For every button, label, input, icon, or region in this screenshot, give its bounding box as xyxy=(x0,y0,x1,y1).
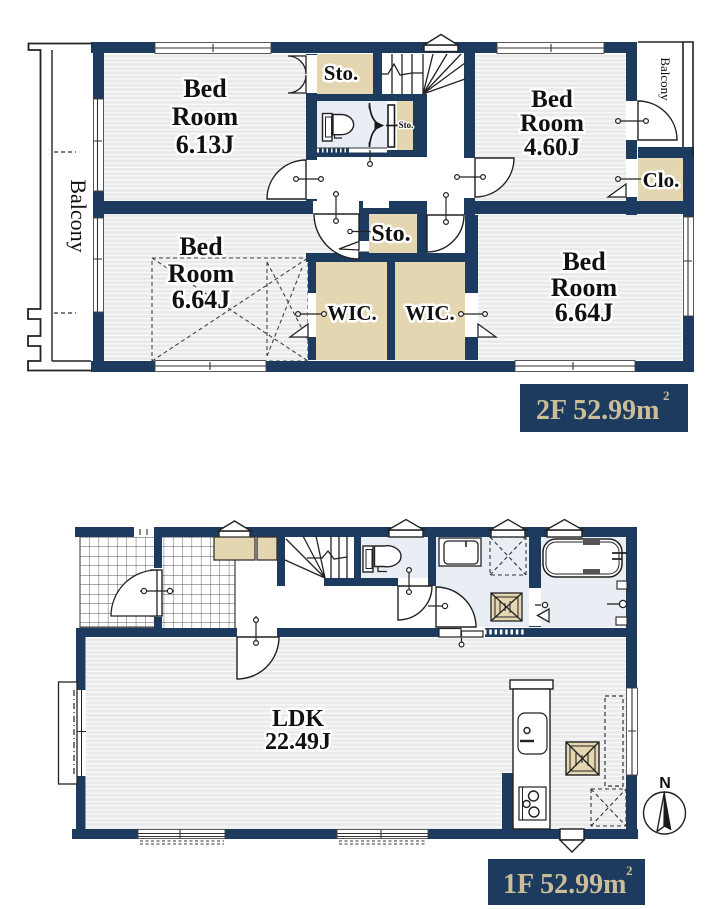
svg-text:Room: Room xyxy=(520,110,584,137)
svg-text:Room: Room xyxy=(168,259,235,288)
svg-text:Room: Room xyxy=(172,102,239,131)
svg-text:N: N xyxy=(659,775,671,792)
svg-text:6.64J: 6.64J xyxy=(172,285,231,314)
svg-text:Sto.: Sto. xyxy=(371,221,410,247)
svg-text:6.64J: 6.64J xyxy=(555,298,614,327)
svg-text:Clo.: Clo. xyxy=(643,168,680,192)
svg-text:Sto.: Sto. xyxy=(324,61,358,85)
svg-text:6.13J: 6.13J xyxy=(176,130,235,159)
svg-text:Bed: Bed xyxy=(183,74,227,103)
svg-text:2F 52.99m: 2F 52.99m xyxy=(536,395,659,426)
svg-text:WIC.: WIC. xyxy=(405,301,455,325)
svg-text:Balcony: Balcony xyxy=(66,179,91,252)
svg-text:2: 2 xyxy=(626,863,633,878)
svg-text:2: 2 xyxy=(663,388,670,403)
svg-text:Bed: Bed xyxy=(179,232,223,261)
svg-text:Bed: Bed xyxy=(531,86,573,113)
svg-text:22.49J: 22.49J xyxy=(265,729,331,755)
svg-text:1F 52.99m: 1F 52.99m xyxy=(503,869,626,900)
svg-text:4.60J: 4.60J xyxy=(524,134,580,161)
svg-text:WIC.: WIC. xyxy=(327,301,377,325)
svg-text:Sto.: Sto. xyxy=(399,120,414,130)
svg-text:Balcony: Balcony xyxy=(658,57,673,101)
svg-text:Bed: Bed xyxy=(562,247,606,276)
